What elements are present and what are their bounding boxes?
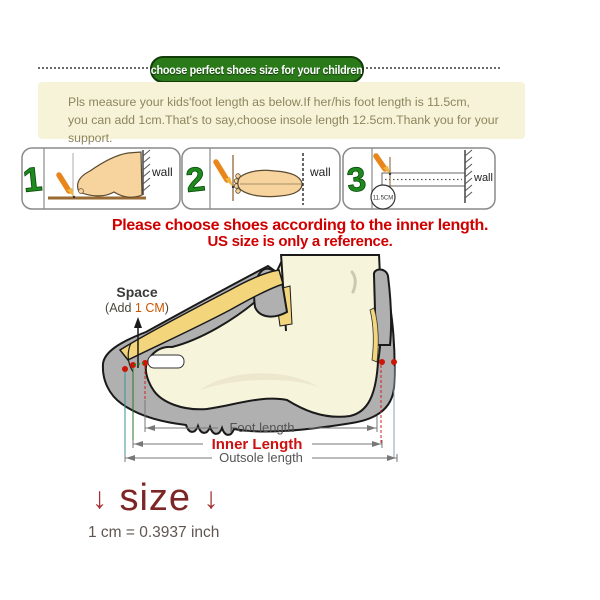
- intro-line-2: you can add 1cm.That's to say,choose ins…: [68, 111, 525, 147]
- big-toe: [79, 189, 84, 194]
- shoe-cross-section-diagram: Space (Add 1 CM) Foot length Inner Lengt…: [0, 250, 520, 475]
- pencil-point: [389, 173, 391, 175]
- inner-length-arrow-left: [134, 441, 143, 447]
- space-arrow-head: [134, 317, 142, 328]
- step-3-box: 3 11.5CM wall: [343, 148, 495, 209]
- step-2-wall-label: wall: [309, 165, 331, 179]
- space-note: (Add 1 CM): [105, 301, 169, 315]
- step-1-box: 1 wall: [21, 148, 180, 209]
- step-2-box: 2 wall: [182, 148, 340, 209]
- pencil-point: [73, 196, 75, 198]
- pencil-point: [232, 186, 234, 188]
- inner-length-arrow-right: [372, 441, 381, 447]
- foot-length-arrow-right: [367, 425, 376, 431]
- conversion-note: 1 cm = 0.3937 inch: [88, 524, 219, 542]
- measurement-value: 11.5CM: [373, 196, 394, 202]
- top-foot-illustration: [234, 170, 302, 196]
- foot-length-label: Foot length: [229, 420, 294, 435]
- step-3-wall-label: wall: [473, 172, 493, 184]
- banner-label: choose perfect shoes size for your child…: [151, 63, 363, 77]
- size-note: ↓ size ↓: [92, 477, 218, 520]
- outsole-length-arrow-left: [126, 455, 135, 461]
- size-label: size: [119, 477, 191, 519]
- down-arrow-icon: ↓: [203, 482, 218, 515]
- measuring-steps-illustration: 1 wall 2: [0, 145, 520, 215]
- notice: Please choose shoes according to the inn…: [0, 217, 600, 250]
- step-2-number: 2: [184, 160, 207, 200]
- space-label: Space: [116, 284, 157, 300]
- down-arrow-icon: ↓: [92, 482, 107, 515]
- intro-line-1: Pls measure your kids'foot length as bel…: [68, 93, 525, 111]
- foot-length-arrow-left: [146, 425, 155, 431]
- toe-highlight: [148, 355, 184, 368]
- notice-line-2: US size is only a reference.: [0, 234, 600, 250]
- leg: [281, 254, 382, 332]
- banner: choose perfect shoes size for your child…: [150, 56, 364, 83]
- step-3-number: 3: [345, 160, 368, 200]
- outsole-length-label: Outsole length: [219, 450, 303, 465]
- step-1-number: 1: [21, 160, 44, 200]
- intro-box: Pls measure your kids'foot length as bel…: [38, 82, 525, 139]
- outsole-length-arrow-right: [387, 455, 396, 461]
- notice-line-1: Please choose shoes according to the inn…: [0, 217, 600, 234]
- step-1-wall-label: wall: [151, 165, 173, 179]
